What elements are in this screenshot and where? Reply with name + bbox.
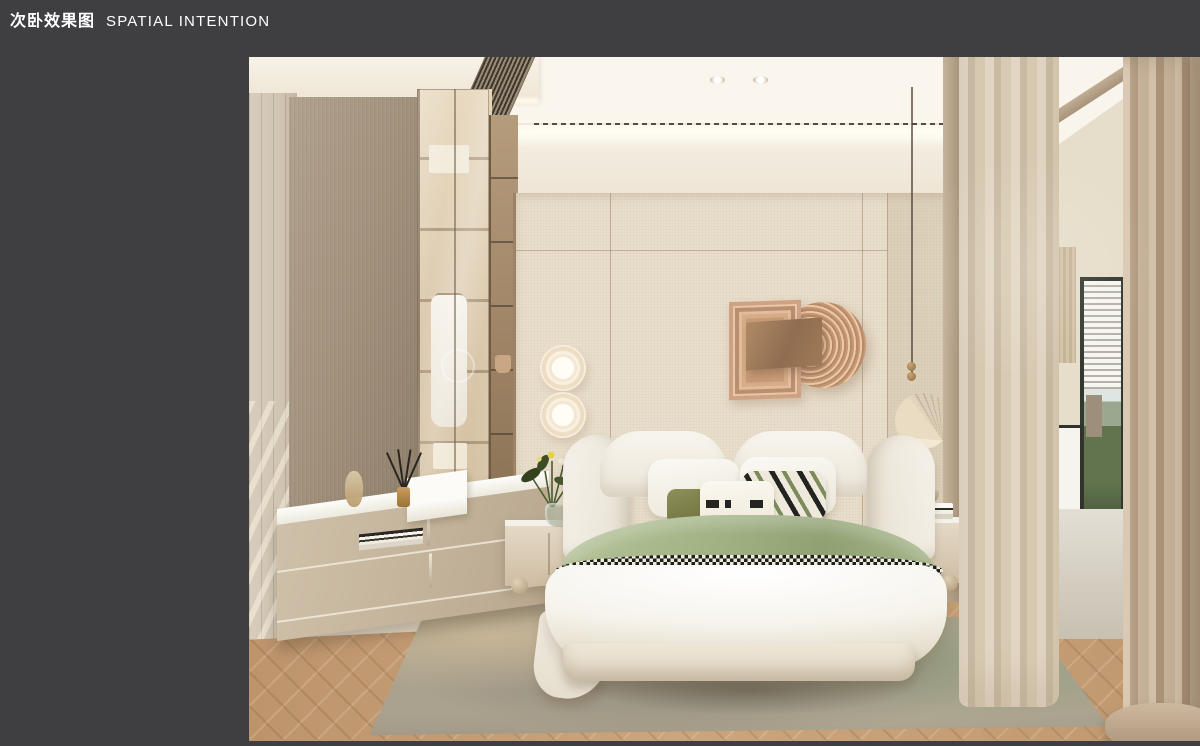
wall-seam-horizontal xyxy=(516,250,887,251)
shelf-bag xyxy=(495,355,511,373)
downlight-left xyxy=(710,76,725,84)
wall-sconce-lower xyxy=(540,392,586,438)
wall-art-panel xyxy=(746,317,822,370)
drawer-pull xyxy=(429,553,432,587)
diffuser-bottle xyxy=(397,487,410,507)
page-title: 次卧效果图 SPATIAL INTENTION xyxy=(10,7,270,31)
slide-background: 次卧效果图 SPATIAL INTENTION xyxy=(0,0,1200,746)
wall-sconce-upper xyxy=(540,345,586,391)
ambient-glow xyxy=(849,107,1200,427)
curtain-puddle xyxy=(1105,703,1200,741)
downlight-right xyxy=(753,76,768,84)
title-english: SPATIAL INTENTION xyxy=(106,13,270,30)
bed-base xyxy=(563,643,915,681)
gold-decor-vase xyxy=(345,471,363,507)
nightstand-left-foot xyxy=(511,577,528,594)
bedroom-render xyxy=(249,57,1200,741)
title-chinese: 次卧效果图 xyxy=(10,7,95,31)
reed-diffuser xyxy=(387,447,423,507)
